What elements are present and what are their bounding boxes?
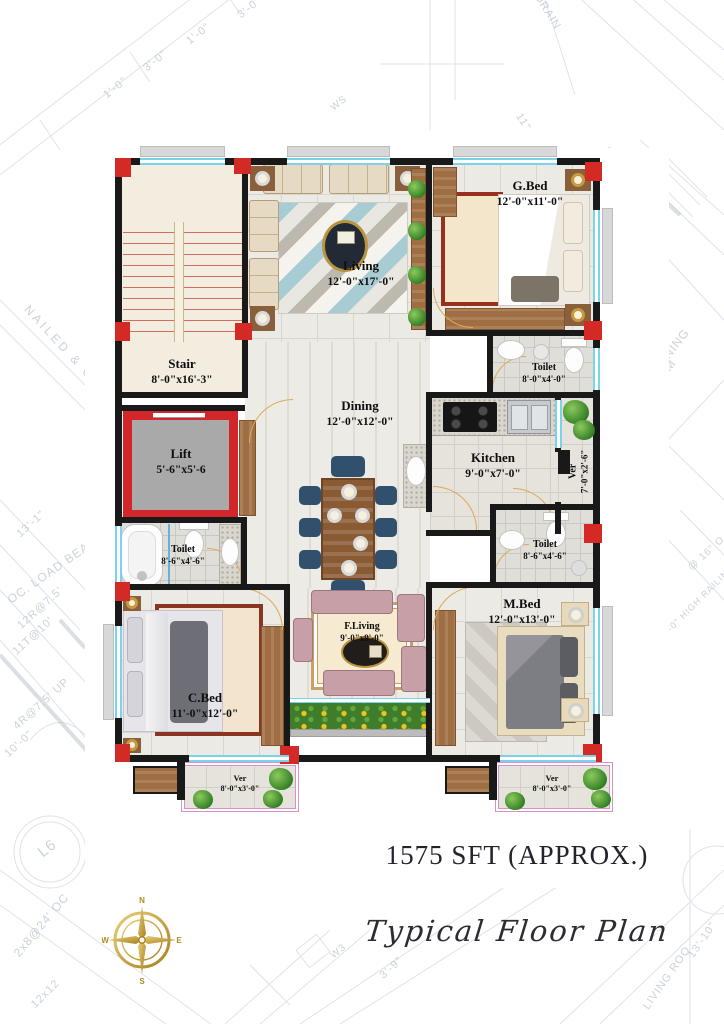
gbed-pillow: [563, 250, 583, 292]
gbed-throw-blanket: [511, 276, 559, 302]
plant: [591, 790, 611, 808]
column: [115, 158, 131, 177]
wall-gbed-bottom: [426, 330, 600, 336]
window-toilet-left: [115, 526, 122, 582]
window-stair-top: [140, 158, 225, 165]
flower-bed-planter: [290, 729, 430, 737]
plan-title: Typical Floor Plan: [350, 914, 684, 948]
window-cbed-veranda: [189, 755, 289, 762]
room-kitchen-label: Kitchen 9'-0"x7'-0": [432, 450, 554, 482]
dining-table: [321, 478, 375, 580]
dining-chair: [299, 486, 321, 505]
room-ver-right-label: Ver 7'-0"x2'-6": [556, 428, 602, 514]
room-living-label: Living 12'-0"x17'-0": [300, 258, 422, 290]
room-mbed-label: M.Bed 12'-0"x13'-0": [463, 596, 581, 628]
wall-kitchen-top: [426, 392, 600, 398]
dining-chair: [299, 550, 321, 569]
washbasin: [497, 340, 525, 360]
column: [115, 322, 130, 341]
window-gbed-right: [593, 210, 600, 302]
living-side-table-1: [250, 166, 275, 191]
room-gbed-label: G.Bed 12'-0"x11'-0": [469, 178, 591, 210]
column: [235, 323, 252, 340]
window-cbed-left: [115, 626, 122, 718]
mbed-nightstand: [561, 698, 589, 722]
wall-cbed-right: [284, 584, 290, 762]
veranda-step: [445, 766, 491, 794]
compass-rose-icon: N S W E: [102, 894, 182, 986]
floor-plan: Stair 8'-0"x16'-3" Living 12'-0"x17'-0" …: [115, 158, 615, 820]
wall-ver-bl-stub: [177, 762, 185, 800]
wall-ver-br-stub: [489, 762, 497, 800]
dining-chair: [299, 518, 321, 537]
dining-chair: [375, 486, 397, 505]
dining-chair: [375, 550, 397, 569]
living-armchair-2: [249, 258, 279, 310]
wall-mbed-top: [426, 582, 600, 588]
kitchen-sink: [507, 400, 551, 434]
living-armchair-1: [249, 200, 279, 252]
room-toilet-top-label: Toilet 8'-0"x4'-0": [491, 361, 597, 386]
window-f-living-balcony: [290, 698, 430, 703]
window-mbed-right: [593, 608, 600, 714]
wall-cbed-top: [115, 584, 290, 590]
column: [115, 744, 130, 762]
room-ver-br-label: Ver 8'-0"x3'-0": [519, 773, 585, 794]
floor-plan-page: DRAIN 3'-0" 1'-0" 3'-0" 1'-0" WS 11" NAI…: [0, 0, 724, 1024]
dining-chair: [331, 456, 365, 477]
wall-living-gbed: [426, 158, 432, 336]
area-annotation: 1575 SFT (APPROX.): [352, 840, 682, 871]
wall-mbed-left: [426, 582, 432, 762]
living-side-table-3: [250, 306, 275, 331]
sill: [140, 146, 225, 157]
plant: [505, 792, 525, 810]
room-toilet-left-label: Toilet 8'-6"x4'-6": [133, 543, 233, 568]
column: [234, 158, 251, 174]
flower-bed: [290, 703, 430, 729]
window-mbed-veranda: [500, 755, 596, 762]
wall-toilet-left-right: [241, 517, 247, 590]
f-living-sofa-bottom: [323, 670, 395, 696]
wall-stair-bottom: [115, 392, 248, 398]
plant: [408, 308, 426, 326]
sill: [103, 624, 114, 720]
room-f-living-label: F.Living 9'-0"x9'-0": [309, 620, 415, 645]
room-stair-label: Stair 8'-0"x16'-3": [133, 356, 231, 388]
stair-rail: [174, 222, 184, 342]
stove: [443, 402, 497, 432]
living-sofa-top-2: [329, 164, 389, 194]
f-living-sofa-top: [311, 590, 393, 614]
wash-basin: [406, 456, 426, 486]
wall-lift-top: [115, 405, 245, 411]
f-living-sofa-right: [401, 646, 427, 692]
plant: [583, 768, 607, 790]
sill: [602, 208, 613, 304]
column: [115, 582, 130, 601]
room-toilet-right-label: Toilet 8'-6"x4'-6": [493, 538, 597, 563]
compass-s: S: [139, 977, 145, 986]
mbed-wardrobe: [435, 610, 456, 746]
wall-kitchen-bottom: [426, 530, 496, 536]
lift-door: [153, 413, 205, 418]
column: [584, 321, 602, 340]
wall-stair-living: [242, 158, 248, 398]
sill: [287, 146, 390, 157]
wall-toilet-left-top: [115, 517, 245, 523]
room-dining-label: Dining 12'-0"x12'-0": [295, 398, 425, 430]
sill: [453, 146, 557, 157]
window-gbed-top: [453, 158, 557, 165]
gbed-dresser: [433, 167, 457, 217]
sill: [602, 606, 613, 716]
room-ver-bl-label: Ver 8'-0"x3'-0": [207, 773, 273, 794]
plant: [408, 222, 426, 240]
room-lift-label: Lift 5'-6"x5'-6: [135, 446, 227, 478]
window-living-top: [287, 158, 390, 165]
compass-n: N: [139, 896, 145, 905]
compass-w: W: [102, 936, 109, 945]
veranda-step: [133, 766, 179, 794]
dining-chair: [375, 518, 397, 537]
plant: [408, 180, 426, 198]
compass-e: E: [176, 936, 182, 945]
room-cbed-label: C.Bed 11'-0"x12'-0": [143, 690, 267, 722]
drain: [533, 344, 549, 360]
cbed-wardrobe: [261, 626, 284, 746]
